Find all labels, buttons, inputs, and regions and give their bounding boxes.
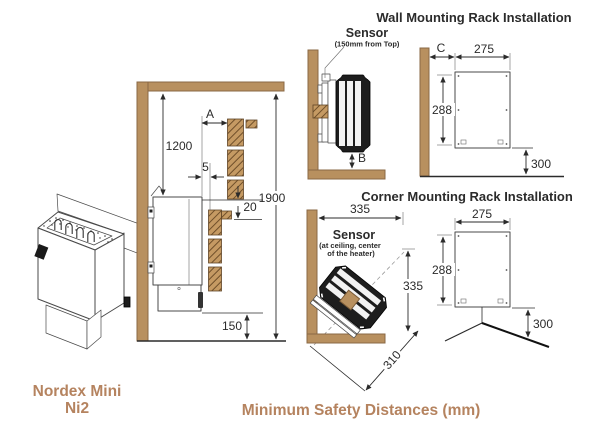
corner-wall-horizontal: [307, 334, 385, 343]
control-box: [158, 285, 201, 311]
dim-5: 5: [202, 160, 209, 174]
heater-body: [153, 197, 202, 285]
wall-mounting-top-view: Sensor (150mm from Top) B: [308, 26, 400, 179]
corner-rack-panel: [455, 232, 510, 307]
rack-wall: [420, 48, 429, 176]
bracket-screw-top: [150, 210, 153, 213]
bench-boards-lower: [209, 210, 232, 291]
product-name-line1: Nordex Mini: [33, 383, 122, 400]
wall-horizontal: [308, 170, 385, 179]
dim-288-wall: 288: [432, 103, 452, 117]
dim-a: A: [206, 107, 214, 121]
bench-boards-upper: [228, 119, 258, 199]
wall-installation-title: Wall Mounting Rack Installation: [376, 10, 571, 25]
diagram-svg: 1200 A 5 1900 20 150: [0, 0, 600, 432]
corner-sensor-label: Sensor: [333, 228, 376, 242]
product-name-line2: Ni2: [65, 400, 89, 417]
rack-panel: [455, 72, 510, 148]
corner-floor-diagonal: [310, 346, 365, 391]
corner-mounting-top-view: Sensor (at ceiling, center of the heater…: [307, 202, 426, 391]
dim-150: 150: [222, 319, 242, 333]
corner-installation-title: Corner Mounting Rack Installation: [361, 189, 573, 204]
corner-heater-top-view: [308, 262, 391, 342]
dim-c: C: [437, 41, 446, 55]
corner-sensor-note2: of the heater): [327, 249, 375, 258]
wall-hook: [151, 186, 163, 196]
wall-mounting-rack-front-view: C 275 288 300: [420, 41, 564, 177]
back-plate: [328, 80, 336, 143]
wall: [137, 82, 148, 341]
dim-335-vert: 335: [403, 279, 423, 293]
heater-3d-illustration: [34, 194, 145, 349]
heater-side-connector: [124, 297, 130, 307]
bracket-screw-bottom: [150, 265, 153, 268]
sensor-box: [322, 74, 330, 81]
dim-1900: 1900: [259, 191, 286, 205]
control-knob: [198, 292, 203, 308]
heater-side-view: [148, 186, 203, 311]
dim-20: 20: [243, 200, 257, 214]
sensor-pointer: [325, 47, 344, 78]
dim-b: B: [358, 151, 366, 165]
corner-floor-left: [445, 323, 482, 341]
side-clearance-diagram: 1200 A 5 1900 20 150: [137, 82, 290, 341]
installation-diagram-page: 1200 A 5 1900 20 150: [0, 0, 600, 432]
safety-distances-title: Minimum Safety Distances (mm): [242, 402, 481, 419]
corner-wall-vertical: [307, 210, 317, 343]
wall-sensor-note: (150mm from Top): [335, 40, 400, 49]
dim-275-corner: 275: [472, 207, 492, 221]
ceiling: [137, 82, 284, 91]
dim-335-top: 335: [350, 202, 370, 216]
corner-mounting-rack-front-view: 275 288 300: [430, 207, 553, 347]
heater-grill-slats: [339, 81, 361, 146]
wall-sensor-label: Sensor: [346, 26, 389, 40]
dim-1200: 1200: [166, 139, 193, 153]
dim-300-corner: 300: [533, 317, 553, 331]
dim-300-wall: 300: [531, 157, 551, 171]
wood-bracket: [313, 105, 328, 118]
dim-275-wall: 275: [474, 42, 494, 56]
dim-288-corner: 288: [432, 263, 452, 277]
